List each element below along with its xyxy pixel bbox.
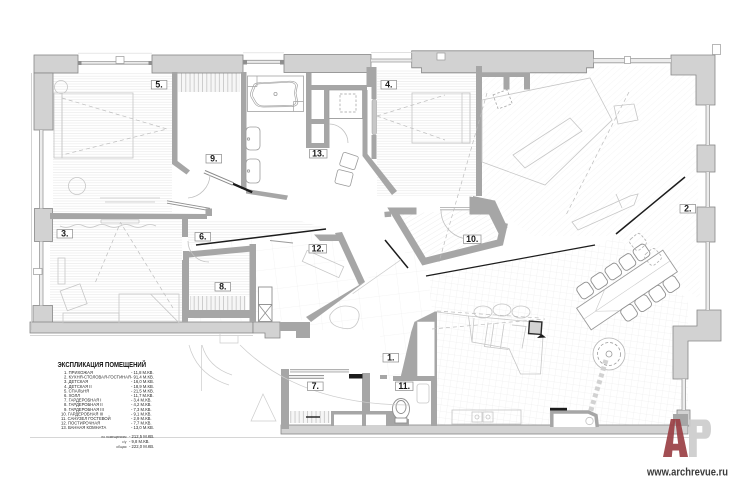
svg-text:- 222,0 М.КВ.: - 222,0 М.КВ. <box>129 444 154 449</box>
svg-text:11.: 11. <box>398 381 410 391</box>
svg-text:9.: 9. <box>210 154 217 164</box>
svg-text:4.: 4. <box>385 80 392 90</box>
svg-text:ЭКСПЛИКАЦИЯ ПОМЕЩЕНИЙ: ЭКСПЛИКАЦИЯ ПОМЕЩЕНИЙ <box>58 360 147 369</box>
svg-text:3.: 3. <box>61 229 68 239</box>
svg-text:13. ВАННАЯ КОМНАТА: 13. ВАННАЯ КОМНАТА <box>61 425 107 430</box>
svg-text:7.: 7. <box>312 381 319 391</box>
svg-text:2.: 2. <box>684 204 691 214</box>
svg-text:общая: общая <box>116 445 127 449</box>
svg-text:5.: 5. <box>155 80 162 90</box>
svg-text:по помещениям: по помещениям <box>101 435 127 439</box>
svg-text:12.: 12. <box>312 244 324 254</box>
svg-text:10.: 10. <box>466 234 478 244</box>
svg-text:- 13,0 М.КВ.: - 13,0 М.КВ. <box>131 425 154 430</box>
svg-text:с/у: с/у <box>122 440 127 444</box>
svg-text:6.: 6. <box>199 232 206 242</box>
svg-text:13.: 13. <box>312 149 324 159</box>
svg-text:www.archrevue.ru: www.archrevue.ru <box>646 467 728 479</box>
svg-text:8.: 8. <box>219 282 226 292</box>
svg-text:1.: 1. <box>387 353 394 363</box>
